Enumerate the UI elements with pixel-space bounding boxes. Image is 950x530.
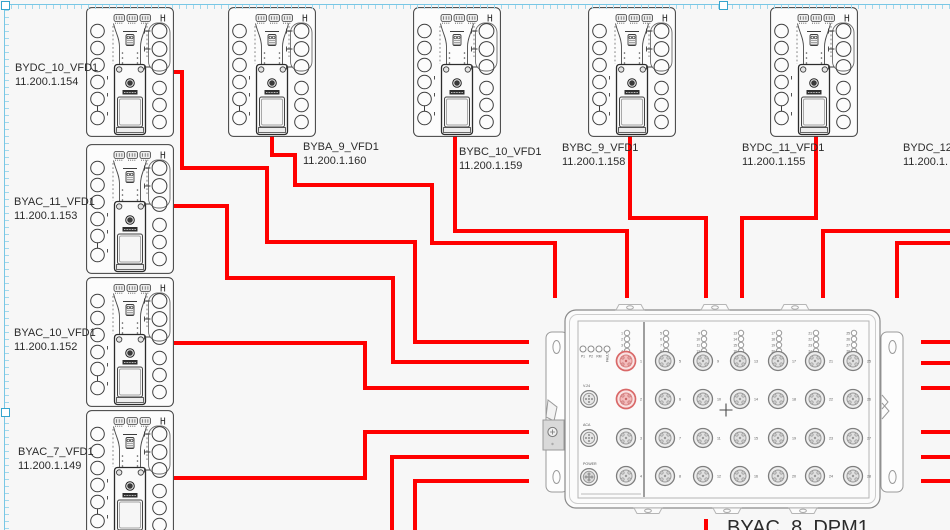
dpm-port-number: 15 xyxy=(754,436,758,440)
vfd-shape[interactable] xyxy=(87,8,174,137)
dpm-led-number: 22 xyxy=(808,337,812,341)
device-name: BYBC_9_VFD1 xyxy=(562,141,638,155)
dpm-shape[interactable]: P1P2RMFAULTV.24ACAPOWER12341234567856789… xyxy=(543,305,903,514)
dpm-led-number: 15 xyxy=(733,343,737,347)
dpm-led-number: 9 xyxy=(698,331,700,335)
selection-handle-top-left[interactable] xyxy=(1,1,10,10)
device-name: BYBA_9_VFD1 xyxy=(303,140,379,154)
dpm-port-number: 3 xyxy=(640,436,642,440)
dpm-port-number: 11 xyxy=(717,436,721,440)
dpm-led-label: FAULT xyxy=(606,352,610,362)
device-label[interactable]: BYBA_9_VFD111.200.1.160 xyxy=(303,140,379,168)
dpm-port-number: 26 xyxy=(867,397,871,401)
device-label[interactable]: BYAC_10_VFD111.200.1.152 xyxy=(14,326,96,354)
device-ip: 11.200.1.152 xyxy=(14,340,96,354)
dpm-port-number: 7 xyxy=(679,436,681,440)
device-name: BYDC_12 xyxy=(903,141,950,155)
device-ip: 11.200.1.149 xyxy=(18,459,94,473)
vfd-shape[interactable] xyxy=(229,8,316,137)
vfd-shape[interactable] xyxy=(414,8,501,137)
dpm-port-number: 8 xyxy=(679,474,681,478)
device-label[interactable]: BYDC_11_VFD111.200.1.155 xyxy=(742,141,824,169)
device-ip: 11.200.1.155 xyxy=(742,155,824,169)
dpm-port-number: 10 xyxy=(717,397,721,401)
dpm-port-number: 16 xyxy=(754,474,758,478)
connection-wire[interactable] xyxy=(630,136,706,298)
device-label[interactable]: BYBC_9_VFD111.200.1.158 xyxy=(562,141,638,169)
vfd-shape[interactable] xyxy=(771,8,858,137)
dpm-port-number: 18 xyxy=(792,397,796,401)
dpm-label[interactable]: BYAC_8_DPM1 xyxy=(727,516,869,530)
device-name: BYDC_11_VFD1 xyxy=(742,141,824,155)
device-name: BYAC_7_VFD1 xyxy=(18,445,94,459)
dpm-led-number: 21 xyxy=(808,331,812,335)
device-ip: 11.200.1.158 xyxy=(562,155,638,169)
dpm-port-number: 5 xyxy=(679,359,681,363)
device-label[interactable]: BYBC_10_VFD111.200.1.159 xyxy=(459,145,542,173)
vfd-shape[interactable] xyxy=(87,145,174,274)
dpm-led-label: P1 xyxy=(581,355,585,359)
dpm-led-number: 14 xyxy=(733,337,737,341)
vfd-shape[interactable] xyxy=(87,411,174,530)
dpm-port-number: 1 xyxy=(640,359,642,363)
selection-handle-top-mid[interactable] xyxy=(719,1,728,10)
device-name: BYAC_10_VFD1 xyxy=(14,326,96,340)
dpm-port-number: 14 xyxy=(754,397,758,401)
device-ip: 11.200.1.154 xyxy=(15,75,98,89)
device-ip: 11.200.1. xyxy=(903,155,950,169)
dpm-port-number: 6 xyxy=(679,397,681,401)
selection-border-left xyxy=(4,4,11,530)
dpm-port-number: 17 xyxy=(792,359,796,363)
dpm-port-number: 12 xyxy=(717,474,721,478)
dpm-led-number: 10 xyxy=(696,337,700,341)
dpm-connector-label: V.24 xyxy=(583,384,590,388)
connection-wire[interactable] xyxy=(897,243,950,298)
device-name: BYDC_10_VFD1 xyxy=(15,61,98,75)
dpm-led-number: 18 xyxy=(771,337,775,341)
dpm-port-number: 27 xyxy=(867,436,871,440)
dpm-connector-label: ACA xyxy=(583,423,591,427)
diagram-canvas[interactable]: H xyxy=(0,0,950,530)
device-label[interactable]: BYAC_7_VFD111.200.1.149 xyxy=(18,445,94,473)
device-ip: 11.200.1.153 xyxy=(14,209,95,223)
device-ip: 11.200.1.159 xyxy=(459,159,542,173)
device-name: BYBC_10_VFD1 xyxy=(459,145,542,159)
dpm-port-number: 19 xyxy=(792,436,796,440)
device-label[interactable]: BYDC_10_VFD111.200.1.154 xyxy=(15,61,98,89)
dpm-led-number: 1 xyxy=(621,331,623,335)
dpm-port-number: 21 xyxy=(829,359,833,363)
dpm-port-number: 22 xyxy=(829,397,833,401)
dpm-port-number: 28 xyxy=(867,474,871,478)
connection-wire[interactable] xyxy=(415,481,529,530)
dpm-port-number: 13 xyxy=(754,359,758,363)
dpm-led-number: 7 xyxy=(660,343,662,347)
selection-border-top xyxy=(4,4,950,11)
dpm-led-number: 6 xyxy=(660,337,662,341)
device-name: BYAC_11_VFD1 xyxy=(14,195,95,209)
dpm-led-label: P2 xyxy=(589,355,593,359)
dpm-port-number: 24 xyxy=(829,474,833,478)
dpm-layer: P1P2RMFAULTV.24ACAPOWER12341234567856789… xyxy=(543,305,903,514)
device-ip: 11.200.1.160 xyxy=(303,154,379,168)
dpm-port-number: 9 xyxy=(717,359,719,363)
dpm-connector-label: POWER xyxy=(583,462,597,466)
dpm-led-number: 17 xyxy=(771,331,775,335)
device-label[interactable]: BYAC_11_VFD111.200.1.153 xyxy=(14,195,95,223)
dpm-port-number: 4 xyxy=(640,474,642,478)
diagram-layer: H xyxy=(0,0,950,530)
dpm-port-number: 2 xyxy=(640,397,642,401)
dpm-led-number: 3 xyxy=(621,343,623,347)
vfd-shape[interactable] xyxy=(589,8,676,137)
dpm-led-number: 5 xyxy=(660,331,662,335)
dpm-led-number: 2 xyxy=(621,337,623,341)
dpm-led-number: 11 xyxy=(697,343,701,347)
dpm-led-number: 26 xyxy=(846,337,850,341)
selection-handle-left-mid[interactable] xyxy=(1,408,10,417)
dpm-port-number: 25 xyxy=(867,359,871,363)
dpm-led-number: 27 xyxy=(846,343,850,347)
dpm-led-label: RM xyxy=(596,355,601,359)
device-label[interactable]: BYDC_1211.200.1. xyxy=(903,141,950,169)
dpm-led-number: 25 xyxy=(846,331,850,335)
dpm-port-number: 20 xyxy=(792,474,796,478)
vfd-shape[interactable] xyxy=(87,278,174,407)
connection-wire[interactable] xyxy=(174,343,529,388)
dpm-led-number: 23 xyxy=(808,343,812,347)
dpm-led-number: 13 xyxy=(733,331,737,335)
dpm-port-number: 23 xyxy=(829,436,833,440)
dpm-led-number: 19 xyxy=(771,343,775,347)
connection-wire[interactable] xyxy=(392,457,529,530)
